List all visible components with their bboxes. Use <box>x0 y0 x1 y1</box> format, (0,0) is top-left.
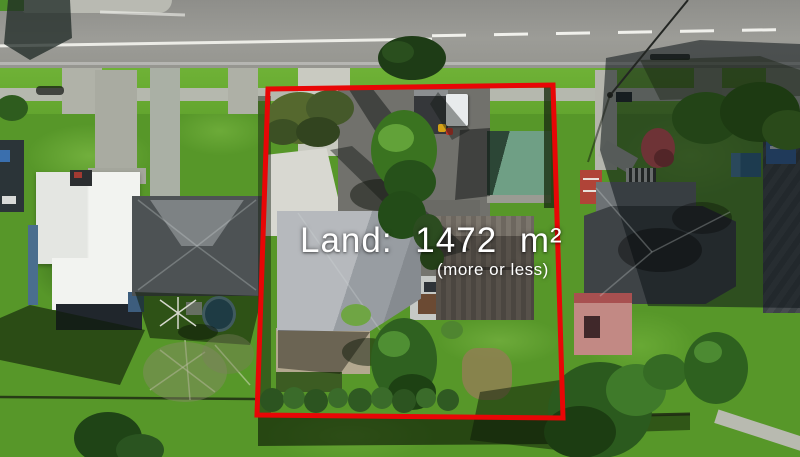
land-area-label: Land: 1472 m² <box>300 221 563 261</box>
land-area-qualifier: (more or less) <box>437 260 549 280</box>
aerial-photo: Land: 1472 m² (more or less) <box>0 0 800 457</box>
